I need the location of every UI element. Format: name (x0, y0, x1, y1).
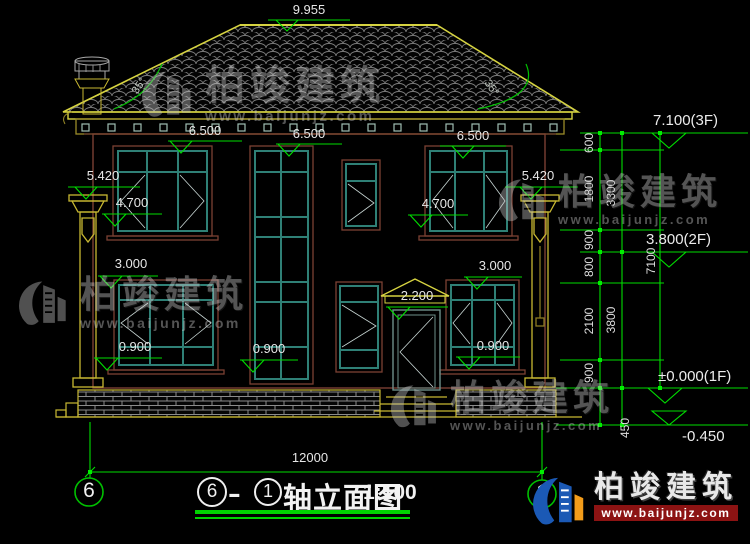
elev-right-4700: 4.700 (406, 196, 470, 211)
window-1f-left (108, 280, 224, 374)
door-frame (393, 310, 440, 390)
window-1f-narrow (336, 282, 382, 372)
elev-left-4700: 4.700 (100, 195, 164, 210)
title-axis-from-circle: 6 (197, 477, 227, 507)
dim-450: 450 (618, 398, 632, 458)
dim-2100: 2100 (582, 291, 596, 351)
level-ground: -0.450 (682, 428, 725, 445)
window-2f-right (419, 146, 518, 240)
elev-eave-3: 6.500 (441, 128, 505, 143)
door-steps (374, 397, 459, 411)
dim-3300: 3300 (604, 163, 618, 223)
elevation-drawing: 9.955 6.500 6.500 6.500 5.420 4.700 3.00… (0, 0, 750, 544)
dim-900b: 900 (582, 343, 596, 403)
brand-name: 柏竣建筑 (594, 472, 738, 504)
pilaster-right (521, 195, 559, 387)
window-2f-left (107, 146, 218, 240)
drawing-scale: 1:100 (363, 481, 417, 505)
dim-7100: 7100 (644, 231, 658, 291)
brand-url: www.baijunjz.com (594, 505, 738, 521)
elev-center-0900: 0.900 (237, 341, 301, 356)
axis-bubble-left: 6 (75, 479, 103, 503)
elev-door-2200: 2.200 (385, 288, 449, 303)
window-2f-small (342, 160, 380, 230)
elev-eave-2: 6.500 (277, 126, 341, 141)
title-underline-thin (195, 517, 410, 519)
level-1f: ±0.000(1F) (658, 368, 731, 385)
brand-logo-icon (532, 472, 590, 532)
plinth (56, 390, 582, 417)
elev-right-3000: 3.000 (463, 258, 527, 273)
elev-eave-1: 6.500 (173, 123, 237, 138)
level-3f: 7.100(3F) (653, 112, 718, 129)
title-underline-thick (195, 510, 410, 514)
elev-right-5420: 5.420 (506, 168, 570, 183)
elev-ridge: 9.955 (277, 2, 341, 17)
elev-left-5420: 5.420 (71, 168, 135, 183)
title-dash: - (228, 478, 241, 509)
dim-12000: 12000 (278, 450, 342, 465)
elev-right-0900: 0.900 (461, 338, 525, 353)
roof (63, 25, 578, 112)
brand-logo: 柏竣建筑 www.baijunjz.com (532, 472, 738, 532)
window-1f-right (440, 280, 525, 374)
elev-left-3000: 3.000 (99, 256, 163, 271)
drawing-canvas (0, 0, 750, 544)
title-axis-to-circle: 1 (254, 478, 282, 506)
dim-800: 800 (582, 237, 596, 297)
elev-left-0900: 0.900 (103, 339, 167, 354)
dim-3800: 3800 (604, 290, 618, 350)
